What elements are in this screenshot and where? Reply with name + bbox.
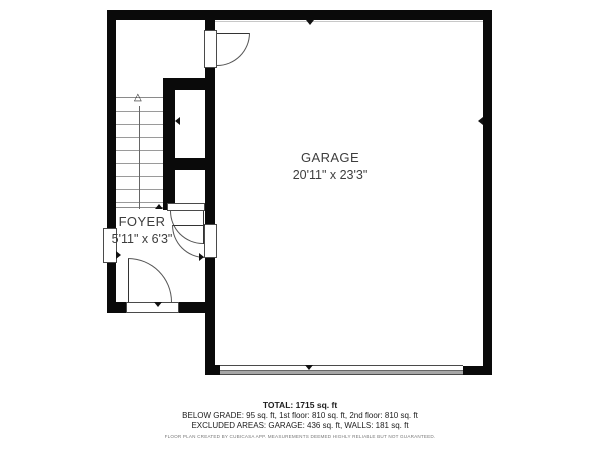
wall-garage-left-seg2	[205, 68, 215, 224]
garage-door	[220, 365, 463, 375]
area-summary: TOTAL: 1715 sq. ft BELOW GRADE: 95 sq. f…	[0, 400, 600, 439]
wall-closet-divider	[163, 158, 210, 170]
marker-icon-garage-top	[306, 20, 314, 25]
stair-walk-line	[139, 106, 140, 209]
marker-icon-garage-right	[478, 117, 483, 125]
marker-icon-garage-entry	[199, 253, 204, 261]
foyer-name: FOYER	[97, 214, 187, 229]
marker-icon-stairs-bottom	[155, 204, 163, 209]
excluded-area-text: EXCLUDED AREAS: GARAGE: 436 sq. ft, WALL…	[0, 421, 600, 431]
floor-plan: △ GARAGE 20'11" x 23'3" FOYER 5'11" x 6'…	[0, 0, 600, 450]
grade-area-text: BELOW GRADE: 95 sq. ft, 1st floor: 810 s…	[0, 411, 600, 421]
door-arc-landing-garage	[217, 33, 250, 66]
garage-ceiling-hairline	[215, 21, 483, 22]
marker-icon-garage-door	[305, 365, 313, 370]
marker-icon-stair-wall	[175, 117, 180, 125]
marker-icon-window	[116, 251, 121, 259]
door-frame-foyer-garage	[204, 224, 217, 258]
door-frame-closet-foyer	[167, 203, 205, 211]
wall-right	[483, 10, 492, 375]
room-label-garage: GARAGE 20'11" x 23'3"	[250, 150, 410, 182]
marker-icon-front-door	[154, 302, 162, 307]
wall-garage-bottom-right-stub	[463, 366, 492, 375]
wall-stair-right	[163, 90, 175, 210]
door-frame-landing-garage	[204, 30, 217, 68]
wall-garage-left-seg3	[205, 258, 215, 366]
garage-door-panel	[220, 370, 463, 375]
total-area-text: TOTAL: 1715 sq. ft	[0, 400, 600, 411]
foyer-dimensions: 5'11" x 6'3"	[97, 232, 187, 246]
door-arc-front-entry	[128, 258, 172, 302]
stair-up-arrow-icon: △	[134, 93, 142, 103]
garage-name: GARAGE	[250, 150, 410, 165]
disclaimer-text: FLOOR PLAN CREATED BY CUBICASA APP. MEAS…	[0, 434, 600, 440]
room-label-foyer: FOYER 5'11" x 6'3"	[97, 214, 187, 246]
wall-foyer-bottom-left	[107, 302, 126, 313]
wall-top	[107, 10, 492, 20]
wall-garage-left-seg1	[205, 18, 215, 30]
door-frame-front-entry	[126, 302, 179, 313]
wall-left-upper	[107, 10, 116, 228]
wall-garage-bottom-left-stub	[205, 365, 220, 375]
garage-dimensions: 20'11" x 23'3"	[250, 168, 410, 182]
staircase	[116, 97, 163, 208]
wall-landing-bottom	[163, 78, 215, 90]
